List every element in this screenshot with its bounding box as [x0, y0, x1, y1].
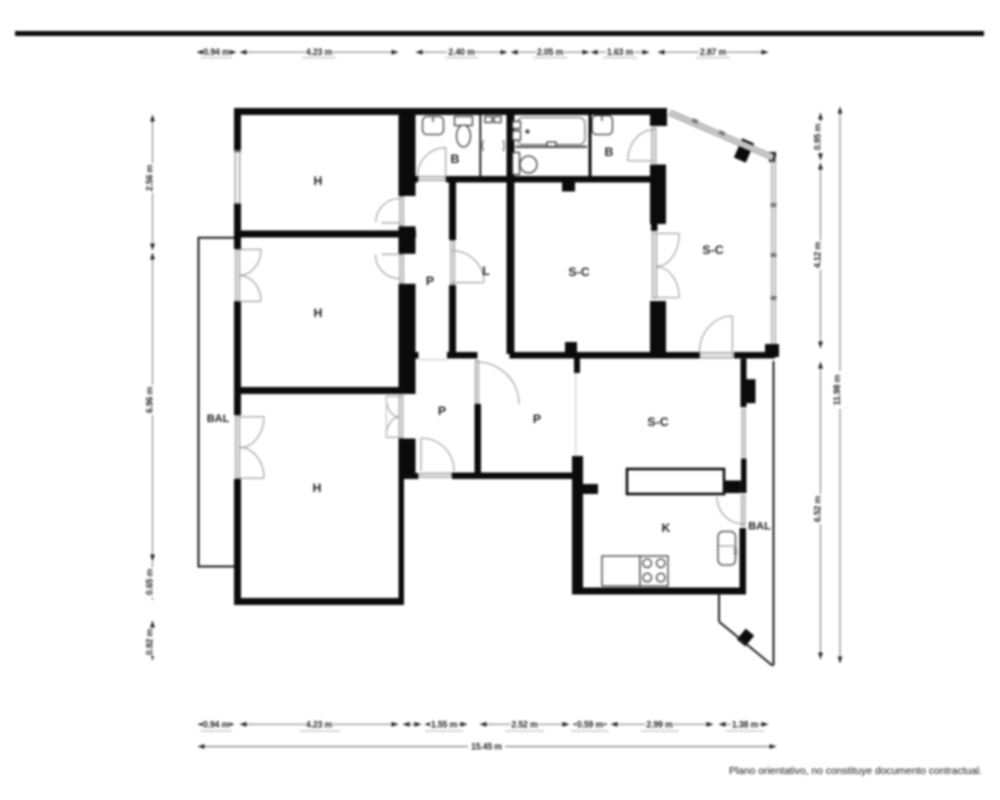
svg-text:S-C: S-C	[647, 415, 668, 429]
svg-text:0.65 m: 0.65 m	[145, 569, 155, 596]
svg-text:H: H	[314, 174, 323, 188]
svg-text:0.92 m: 0.92 m	[145, 629, 155, 656]
svg-text:2.56 m: 2.56 m	[145, 165, 155, 192]
svg-text:11.98 m: 11.98 m	[832, 374, 842, 405]
svg-text:1.63 m: 1.63 m	[607, 47, 634, 57]
svg-text:1.55 m: 1.55 m	[431, 720, 458, 730]
svg-text:1.38 m: 1.38 m	[732, 720, 759, 730]
svg-text:6.96 m: 6.96 m	[145, 387, 155, 414]
svg-text:15.45 m: 15.45 m	[471, 742, 502, 752]
svg-text:4.23 m: 4.23 m	[306, 720, 333, 730]
svg-text:H: H	[314, 306, 323, 320]
svg-text:S-C: S-C	[702, 243, 723, 257]
svg-text:P: P	[426, 274, 434, 288]
svg-text:P: P	[533, 412, 541, 426]
svg-text:2.05 m: 2.05 m	[537, 47, 564, 57]
svg-text:K: K	[662, 521, 671, 535]
svg-text:BAL: BAL	[748, 521, 771, 533]
svg-text:H: H	[313, 481, 322, 495]
svg-text:P: P	[438, 404, 446, 418]
svg-text:0.95 m: 0.95 m	[813, 124, 823, 151]
svg-text:2.40 m: 2.40 m	[448, 47, 475, 57]
svg-text:2.52 m: 2.52 m	[511, 720, 538, 730]
svg-text:B: B	[451, 152, 460, 166]
svg-text:0.94 m: 0.94 m	[203, 47, 230, 57]
svg-text:4.23 m: 4.23 m	[306, 47, 333, 57]
svg-text:4.12 m: 4.12 m	[813, 242, 823, 269]
svg-text:0.94 m: 0.94 m	[203, 720, 230, 730]
svg-text:BAL: BAL	[207, 413, 230, 425]
svg-text:0.59 m: 0.59 m	[577, 720, 604, 730]
svg-text:B: B	[605, 145, 614, 159]
svg-text:6.52 m: 6.52 m	[813, 496, 823, 523]
svg-text:Plano orientativo, no constitu: Plano orientativo, no constituye documen…	[729, 766, 982, 777]
svg-text:2.99 m: 2.99 m	[646, 720, 673, 730]
svg-text:2.87 m: 2.87 m	[700, 47, 727, 57]
svg-text:S-C: S-C	[568, 265, 589, 279]
svg-text:L: L	[482, 264, 490, 278]
